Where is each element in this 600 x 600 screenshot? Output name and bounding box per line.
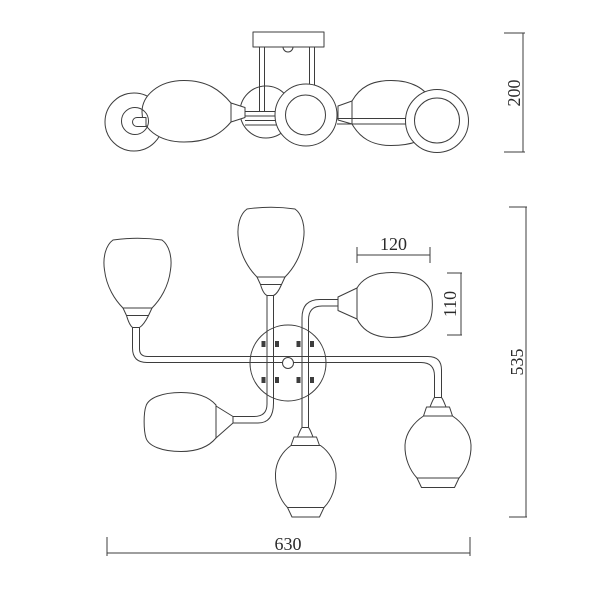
shade-lower-left — [144, 393, 233, 452]
dimension-shade-length: 110 — [440, 273, 462, 335]
shade-upper-right — [338, 273, 432, 338]
mounting-screw — [283, 47, 293, 52]
dimension-shade-width: 120 — [357, 234, 430, 263]
dim-label-630: 630 — [275, 534, 302, 554]
dim-label-200: 200 — [504, 80, 524, 107]
technical-drawing-canvas: 200 120 110 535 630 — [0, 0, 600, 600]
drawing-sheet: 200 120 110 535 630 — [0, 0, 600, 600]
dimension-overall-height: 200 — [504, 33, 525, 152]
left-end-shade-holder — [133, 118, 147, 127]
shade-upper-left — [104, 238, 171, 327]
right-shade-socket — [338, 101, 352, 124]
dim-label-110: 110 — [440, 291, 460, 317]
shade-bottom-center — [275, 428, 336, 518]
left-ovoid-shade — [142, 81, 231, 143]
shade-bottom-right — [405, 398, 471, 488]
dimension-overall-width: 630 — [107, 534, 470, 556]
right-stem — [310, 47, 315, 87]
ceiling-plate — [253, 32, 324, 47]
dimension-overall-depth: 535 — [507, 207, 527, 517]
shade-top-center — [238, 207, 304, 295]
dim-label-120: 120 — [380, 234, 407, 254]
plan-view — [104, 207, 471, 517]
side-elevation-view — [105, 32, 469, 153]
center-ring-shade-inner — [286, 95, 326, 135]
canopy-center-screw — [283, 358, 294, 369]
right-ring-shade-inner — [415, 98, 460, 143]
dim-label-535: 535 — [507, 349, 527, 376]
